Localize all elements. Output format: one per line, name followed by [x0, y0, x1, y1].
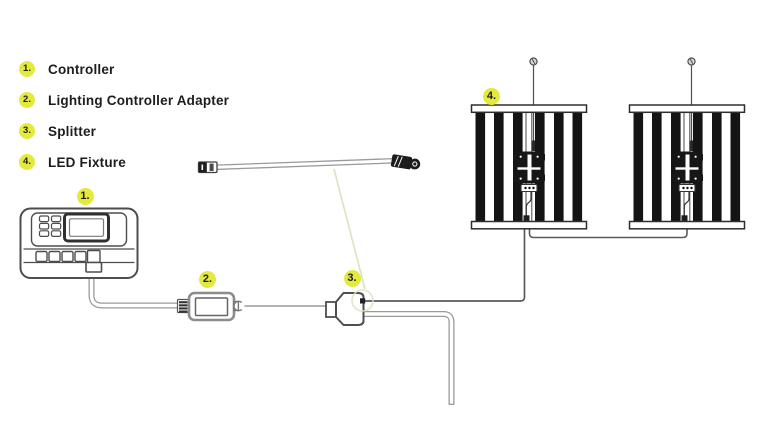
fixture-dimmer-box — [679, 185, 695, 192]
callout-badge-splitter: 3. — [344, 270, 361, 287]
fixture-driver — [513, 152, 545, 184]
legend-label: Controller — [48, 62, 115, 77]
adapter-output-clamp — [234, 301, 242, 310]
callout-leader-line — [334, 169, 373, 311]
legend-number-badge: 4. — [19, 154, 35, 170]
adapter-input-plug — [178, 300, 190, 313]
controller-cable-connector — [86, 263, 102, 273]
legend-number-badge: 1. — [19, 61, 35, 77]
fixture-driver — [671, 152, 703, 184]
legend-item-splitter: 3. Splitter — [19, 123, 96, 139]
legend-item-adapter: 2. Lighting Controller Adapter — [19, 92, 229, 108]
fixture-bottom-rail — [472, 222, 587, 229]
legend-number-badge: 2. — [19, 92, 35, 108]
splitter-to-fixture-wire — [363, 229, 525, 302]
legend-number-badge: 3. — [19, 123, 35, 139]
controller-illustration — [21, 209, 138, 279]
cable-plug-left — [199, 162, 218, 173]
cable-plug-right — [391, 154, 421, 171]
splitter-illustration — [326, 293, 365, 325]
led-fixture-2 — [630, 58, 745, 229]
hanging-hook-icon — [530, 58, 537, 65]
led-fixture-1 — [472, 58, 587, 229]
fixture-top-rail — [472, 105, 587, 112]
callout-badge-controller: 1. — [77, 188, 94, 205]
callout-badge-adapter: 2. — [199, 271, 216, 288]
legend-item-led-fixture: 4. LED Fixture — [19, 154, 126, 170]
fixture-power-inlet — [682, 215, 688, 221]
splitter-power-cable — [363, 314, 454, 404]
wiring-diagram: 1. Controller 2. Lighting Controller Ada… — [0, 0, 768, 428]
fixture-top-rail — [630, 105, 745, 112]
fixture-power-inlet — [524, 215, 530, 221]
fixture-bottom-rail — [630, 222, 745, 229]
legend-item-controller: 1. Controller — [19, 61, 115, 77]
interconnect-cable-illustration — [199, 154, 422, 172]
adapter-illustration — [178, 293, 242, 320]
legend-label: LED Fixture — [48, 155, 126, 170]
controller-display — [65, 214, 109, 241]
splitter-output-terminal — [360, 298, 365, 303]
diagram-line-art — [0, 0, 768, 428]
legend-label: Lighting Controller Adapter — [48, 93, 229, 108]
callout-badge-led-fixture: 4. — [483, 88, 500, 105]
hanging-hook-icon — [688, 58, 695, 65]
fixture-daisy-chain-wire — [530, 229, 688, 238]
controller-ports — [36, 251, 100, 263]
legend-label: Splitter — [48, 124, 96, 139]
fixture-dimmer-box — [521, 185, 537, 192]
